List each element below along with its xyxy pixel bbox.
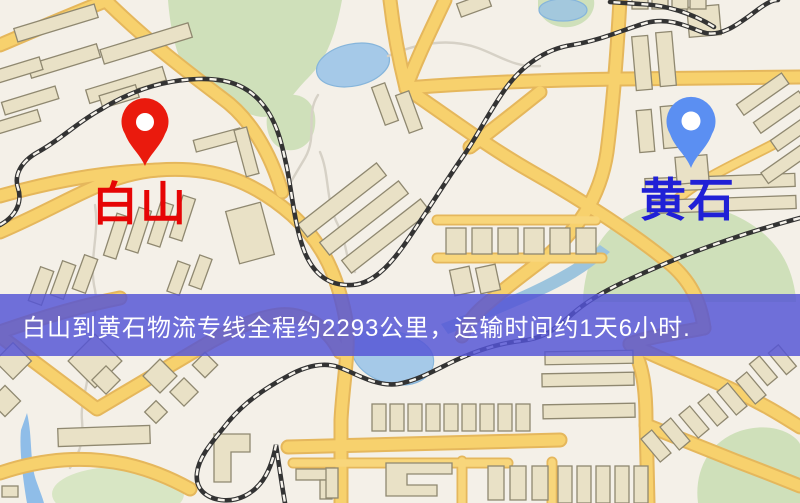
origin-label: 白山 <box>92 181 188 227</box>
route-info-text: 白山到黄石物流专线全程约2293公里，运输时间约1天6小时. <box>0 308 691 343</box>
base-map <box>0 0 800 503</box>
destination-pin-icon[interactable] <box>661 96 721 166</box>
destination-label: 黄石 <box>640 177 736 223</box>
route-info-banner: 白山到黄石物流专线全程约2293公里，运输时间约1天6小时. <box>0 294 800 356</box>
origin-pin-icon[interactable] <box>115 96 175 166</box>
map-canvas[interactable]: 白山 黄石 白山到黄石物流专线全程约2293公里，运输时间约1天6小时. <box>0 0 800 503</box>
